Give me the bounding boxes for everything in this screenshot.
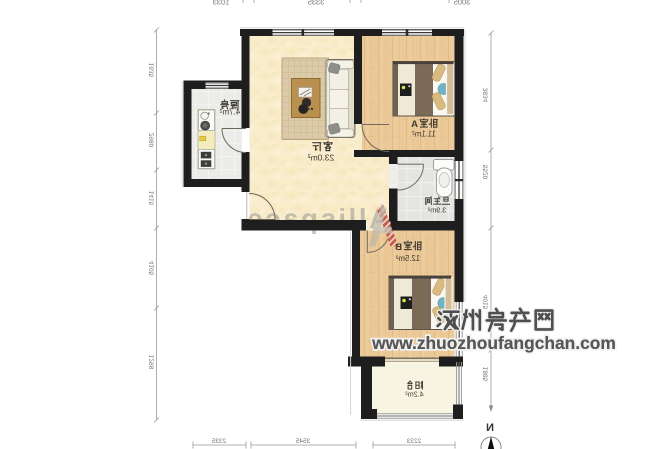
svg-text:B: B xyxy=(395,242,402,253)
svg-text:4015: 4015 xyxy=(483,295,490,310)
svg-text:N: N xyxy=(486,422,494,434)
svg-text:3005: 3005 xyxy=(454,0,471,7)
svg-text:A: A xyxy=(411,119,418,130)
svg-text:1415: 1415 xyxy=(149,191,156,206)
svg-text:12.5m²: 12.5m² xyxy=(395,254,420,263)
svg-text:5520: 5520 xyxy=(483,165,490,180)
svg-text:2233: 2233 xyxy=(406,438,421,445)
svg-text:3834: 3834 xyxy=(483,88,490,103)
svg-text:1033: 1033 xyxy=(213,0,230,7)
svg-text:1885: 1885 xyxy=(483,367,490,382)
svg-text:3.9m²: 3.9m² xyxy=(427,206,446,215)
svg-text:11.1m²: 11.1m² xyxy=(412,130,436,139)
svg-text:4105: 4105 xyxy=(149,261,156,276)
svg-text:3545: 3545 xyxy=(295,438,310,445)
svg-text:2335: 2335 xyxy=(211,438,226,445)
svg-text:4.7m²: 4.7m² xyxy=(219,108,240,117)
svg-text:2980: 2980 xyxy=(149,133,156,148)
svg-text:23.0m²: 23.0m² xyxy=(308,153,335,163)
svg-text:1298: 1298 xyxy=(149,355,156,370)
svg-text:1635: 1635 xyxy=(149,63,156,78)
svg-text:3335: 3335 xyxy=(308,0,325,7)
svg-text:www.zhuozhoufangchan.com: www.zhuozhoufangchan.com xyxy=(371,333,616,353)
svg-text:4.2m²: 4.2m² xyxy=(405,390,424,399)
